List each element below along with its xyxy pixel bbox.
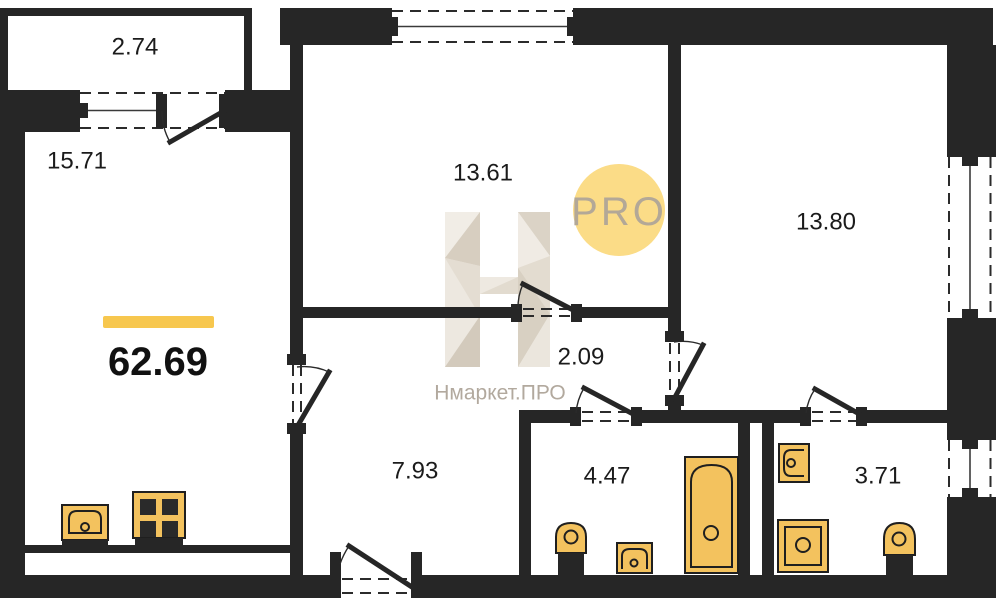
room-label-hall: 2.09 — [558, 344, 605, 371]
door-bathroom — [570, 388, 642, 426]
washing-machine-icon — [778, 520, 828, 572]
pro-badge: PRO — [571, 164, 667, 256]
wall-segment — [738, 423, 750, 575]
door-bedroom-right — [665, 331, 703, 406]
wall-segment — [762, 423, 774, 575]
window-top — [385, 11, 580, 42]
wall-segment — [947, 45, 996, 157]
wall-segment — [947, 318, 996, 440]
kitchen-sink-icon — [62, 505, 108, 553]
wall-segment — [573, 8, 993, 45]
room-label-living-room: 15.71 — [47, 148, 107, 175]
door-balcony — [156, 94, 230, 142]
wall-segment — [290, 8, 303, 363]
wall-segment — [0, 575, 341, 598]
total-area-accent-bar — [103, 316, 214, 328]
wall-segment — [244, 8, 252, 90]
total-area-label: 62.69 — [108, 340, 208, 384]
floorplan-canvas: PRO Нмаркет.ПРО — [0, 0, 998, 600]
wall-segment — [519, 412, 531, 575]
wall-segment — [866, 410, 947, 423]
room-label-balcony: 2.74 — [112, 34, 159, 61]
wall-segment — [411, 575, 996, 598]
wall-segment — [0, 90, 25, 598]
room-label-corridor: 7.93 — [392, 458, 439, 485]
toilet-2-icon — [884, 523, 915, 575]
pro-badge-label: PRO — [571, 190, 667, 234]
room-label-bedroom-right: 13.80 — [796, 209, 856, 236]
floorplan-svg: PRO Нмаркет.ПРО — [0, 0, 998, 600]
wall-segment — [668, 45, 681, 342]
window-right-lower — [949, 440, 991, 497]
wall-segment — [640, 410, 803, 423]
room-label-bedroom-middle: 13.61 — [453, 160, 513, 187]
watermark-logo: PRO Нмаркет.ПРО — [434, 164, 667, 405]
door-toilet-bathroom — [800, 389, 867, 426]
door-entrance — [330, 546, 422, 593]
room-label-toilet-bathroom: 3.71 — [855, 463, 902, 490]
wall-segment — [0, 8, 252, 16]
door-living-room — [287, 354, 329, 434]
wall-segment — [0, 8, 8, 92]
window-right-upper — [949, 157, 991, 318]
stove-icon — [133, 492, 185, 553]
total-area-block: 62.69 — [103, 316, 214, 384]
bathtub-icon — [685, 457, 738, 573]
toilet-icon — [556, 523, 586, 575]
bathroom-sink-icon — [617, 543, 652, 573]
brand-text: Нмаркет.ПРО — [434, 382, 565, 405]
wall-segment — [581, 307, 681, 318]
room-label-bathroom: 4.47 — [584, 463, 631, 490]
corner-sink-icon — [779, 444, 809, 482]
wall-segment — [303, 307, 512, 318]
